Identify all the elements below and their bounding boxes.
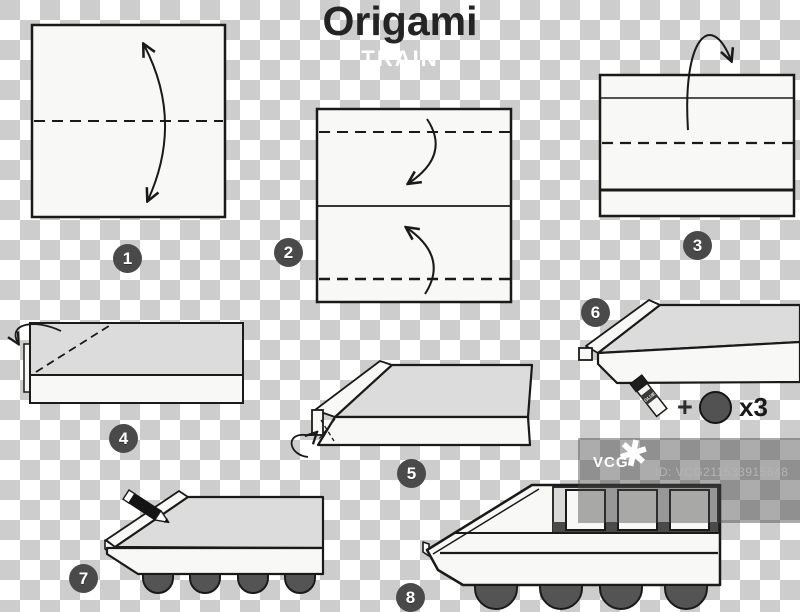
step-4-badge: 4 xyxy=(109,424,138,453)
step-1-diagram xyxy=(30,23,228,221)
wheel-icon xyxy=(285,574,315,593)
wheel-icon xyxy=(475,585,517,609)
paper-left-tab xyxy=(579,348,592,360)
step-3-diagram xyxy=(597,3,799,225)
paper-bottom-strip xyxy=(30,375,243,403)
step-7-badge: 7 xyxy=(69,564,98,593)
curl-arrow-icon xyxy=(292,433,316,457)
paper-front-face xyxy=(318,417,530,445)
plus-sign: + xyxy=(677,394,693,421)
wheel-icon xyxy=(665,585,707,609)
paper-top-face xyxy=(30,323,243,375)
watermark: VCG ✱ ID: VCG211533915648 xyxy=(578,438,800,523)
paper-rect xyxy=(600,75,794,216)
step-3-badge: 3 xyxy=(683,231,712,260)
step-4-diagram xyxy=(8,316,256,416)
wheel-icon xyxy=(190,574,220,593)
wheel-icon xyxy=(238,574,268,593)
step-5-diagram xyxy=(288,353,538,463)
paper-left-tab xyxy=(312,410,323,435)
wheel-icon xyxy=(600,585,642,609)
step-8-badge: 8 xyxy=(396,583,425,612)
body-lower-band xyxy=(107,548,323,574)
step-6-badge: 6 xyxy=(581,298,610,327)
step-2-diagram xyxy=(315,107,513,305)
quantity-label: x3 xyxy=(739,394,768,420)
wheel-icon xyxy=(143,574,173,593)
origami-tutorial-canvas: Origami TRAIN 1 2 xyxy=(0,0,800,612)
step-1-badge: 1 xyxy=(113,244,142,273)
step-2-badge: 2 xyxy=(274,238,303,267)
wheel-icon xyxy=(540,585,582,609)
watermark-id: ID: VCG211533915648 xyxy=(655,465,788,479)
step-7-diagram xyxy=(93,476,343,606)
paper-circle-icon xyxy=(699,391,732,424)
watermark-star-icon: ✱ xyxy=(615,433,652,474)
